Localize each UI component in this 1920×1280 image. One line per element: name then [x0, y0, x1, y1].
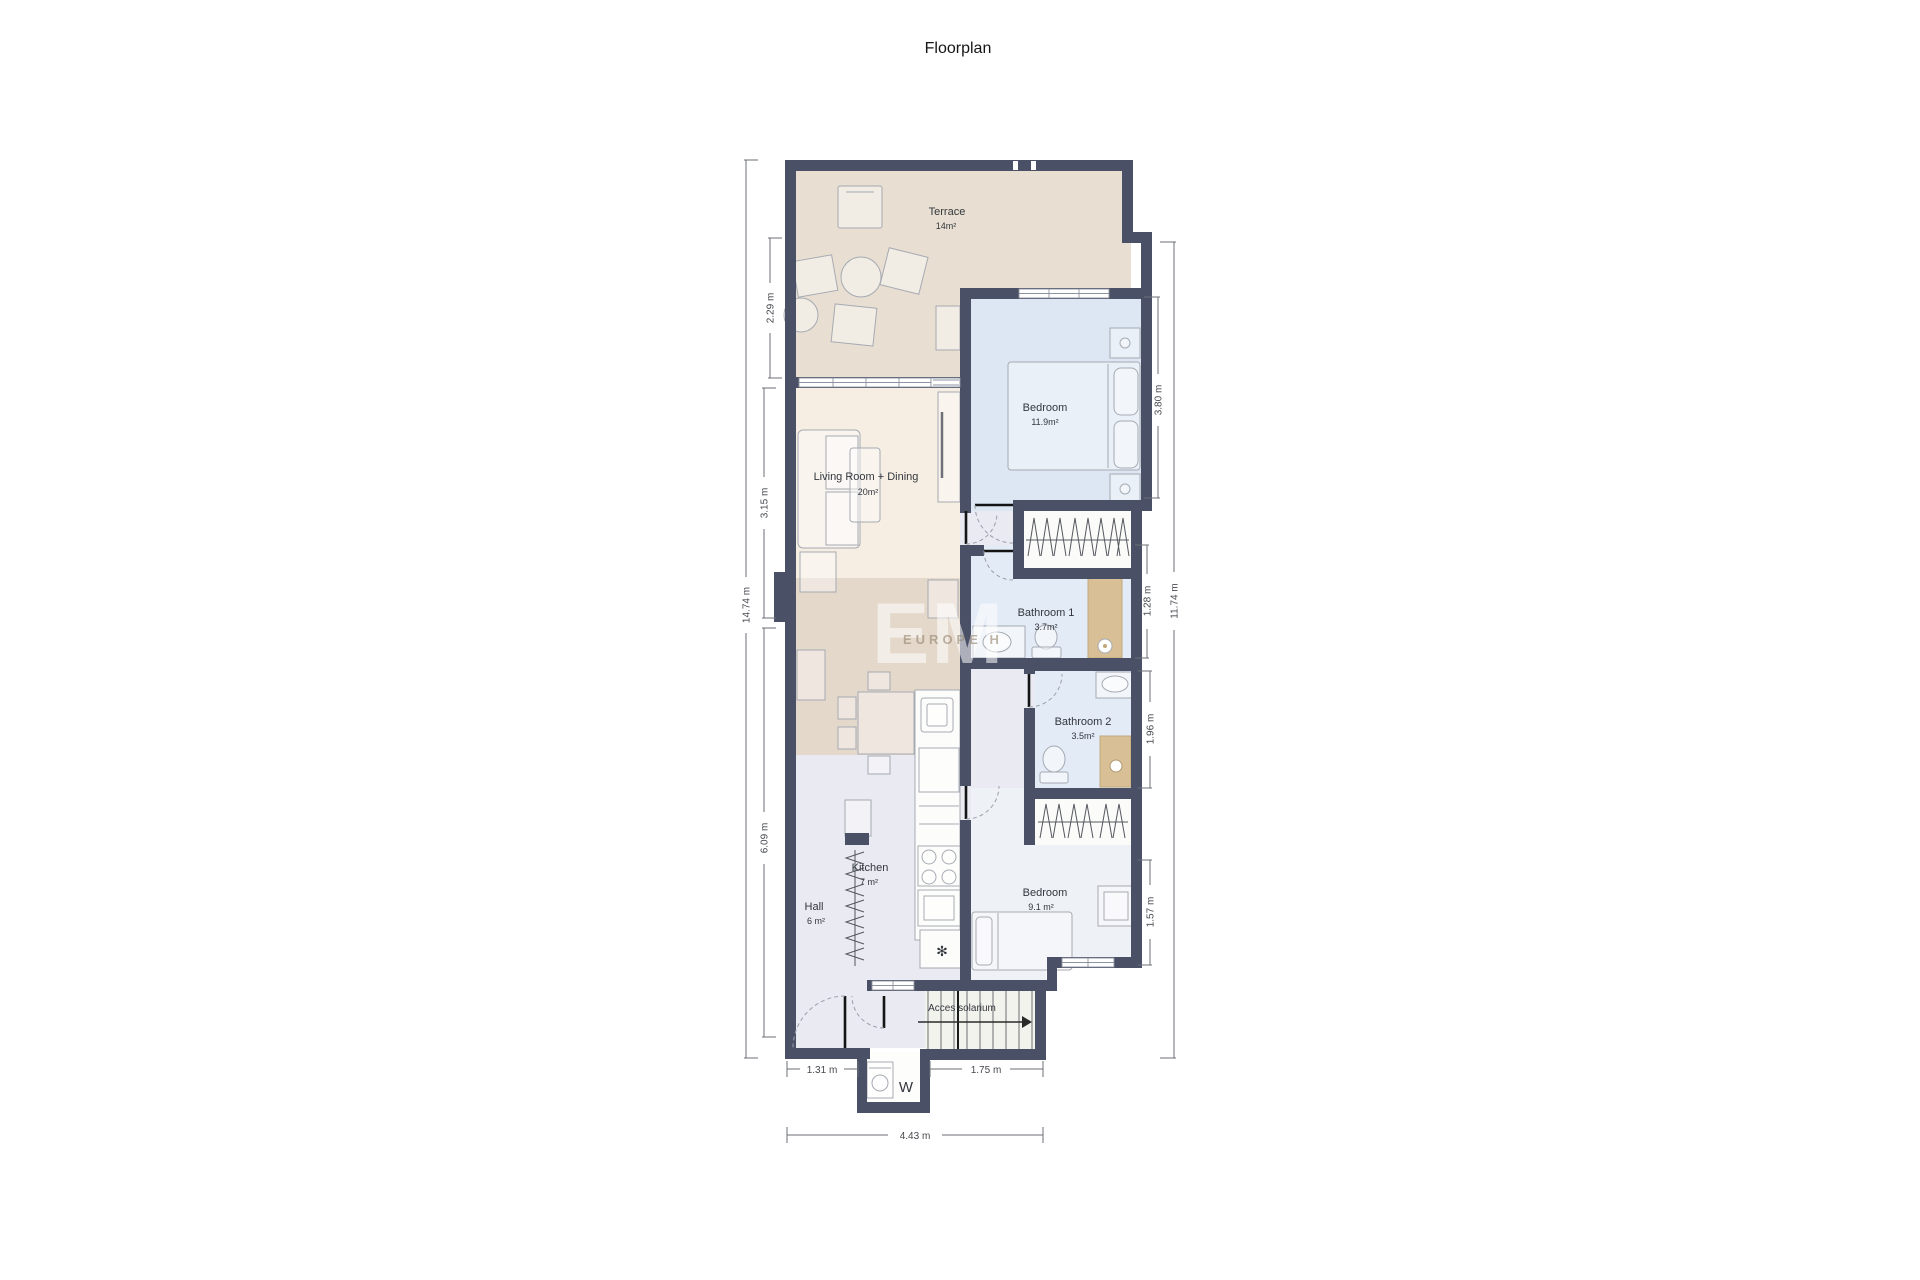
kitchen-counter-icon	[915, 690, 960, 940]
watermark: EM EUROPE H	[872, 586, 1005, 682]
bedroom2-area: 9.1 m²	[1028, 902, 1054, 912]
watermark-text: EUROPE H	[903, 632, 1003, 647]
hall-cabinet-icon	[845, 800, 871, 836]
shower2-icon	[1100, 736, 1131, 787]
dim-hall-bottom: 1.31 m	[807, 1065, 838, 1076]
sink2-icon	[1096, 672, 1134, 698]
living-area: 20m²	[858, 487, 879, 497]
dim-overall-right: 11.74 m	[1170, 583, 1181, 618]
floorplan-page: ✻	[0, 0, 1920, 1280]
dim-bedroom2-right: 1.57 m	[1146, 897, 1157, 928]
dim-bedroom1-right: 3.80 m	[1154, 385, 1165, 416]
dim-bathroom1-right: 1.28 m	[1143, 586, 1154, 617]
dim-bathroom2-right: 1.96 m	[1146, 714, 1157, 745]
page-title: Floorplan	[925, 40, 992, 57]
coffee-table-icon	[850, 448, 880, 522]
laundry-label: W	[899, 1079, 914, 1096]
tv-unit-icon	[938, 392, 960, 502]
dim-terrace-left: 2.29 m	[766, 293, 777, 324]
terrace-label: Terrace	[929, 206, 966, 218]
bedroom2-label: Bedroom	[1023, 887, 1068, 899]
bathroom2-area: 3.5m²	[1071, 731, 1094, 741]
floorplan-drawing: ✻	[0, 0, 1920, 1280]
stairs-label: Acces solarium	[928, 1003, 996, 1014]
dim-overall-bottom: 4.43 m	[900, 1131, 931, 1142]
dim-overall-left: 14.74 m	[742, 587, 753, 623]
dim-living-left: 3.15 m	[760, 488, 771, 519]
hall-label: Hall	[805, 901, 824, 913]
bedroom1-area: 11.9m²	[1031, 417, 1058, 427]
kitchen-island-icon: ✻	[920, 930, 964, 968]
terrace-door-opening	[931, 378, 960, 387]
bathroom1-label: Bathroom 1	[1018, 607, 1075, 619]
living-label: Living Room + Dining	[814, 471, 919, 483]
dim-lower-left: 6.09 m	[760, 823, 771, 854]
hall-area: 6 m²	[807, 916, 825, 926]
dim-stairs-bottom: 1.75 m	[971, 1065, 1002, 1076]
kitchen-area: 7 m²	[860, 877, 878, 887]
washing-machine-icon	[867, 1062, 893, 1098]
svg-text:✻: ✻	[936, 943, 948, 959]
bathroom2-label: Bathroom 2	[1055, 716, 1112, 728]
terrace-area: 14m²	[936, 221, 957, 231]
shower1-icon	[1088, 578, 1122, 658]
bathroom1-area: 3.7m²	[1034, 622, 1057, 632]
bedroom1-label: Bedroom	[1023, 402, 1068, 414]
kitchen-label: Kitchen	[852, 862, 889, 874]
